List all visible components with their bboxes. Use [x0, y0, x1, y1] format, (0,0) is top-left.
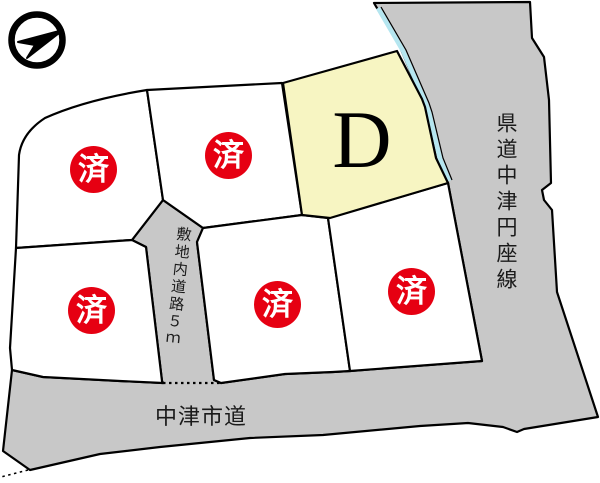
road-edge-dotted-continuation	[1, 470, 28, 477]
city-road-label: 中津市道	[155, 399, 247, 431]
prefectural-road-label: 県道中津円座線	[490, 112, 520, 294]
north-arrow-icon	[12, 15, 64, 66]
lot-map: 県道中津円座線 敷地内道路５ｍ 中津市道 D 済 済 済 済 済	[0, 0, 600, 483]
sold-badge-lower-center: 済	[254, 281, 301, 328]
sold-badge-top-left: 済	[70, 146, 117, 193]
sold-badge-lower-right: 済	[388, 268, 435, 315]
sold-badge-top-center: 済	[205, 132, 252, 179]
sold-badge-lower-left: 済	[68, 287, 115, 334]
lot-d-label[interactable]: D	[322, 96, 402, 186]
